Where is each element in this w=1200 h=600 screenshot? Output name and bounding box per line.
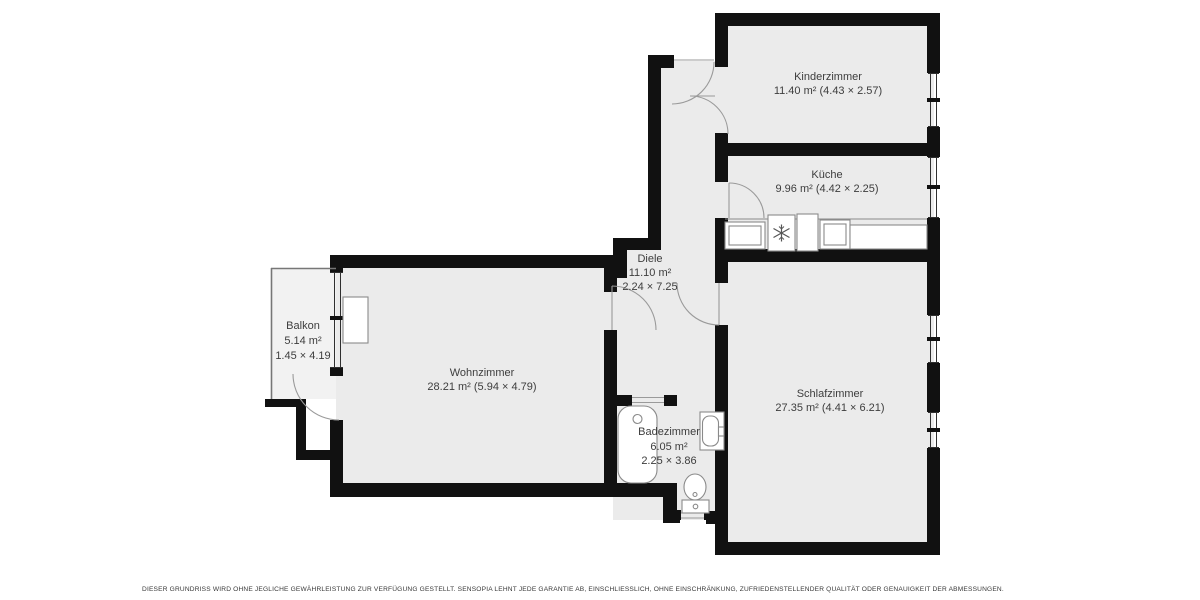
room-floors bbox=[271, 20, 934, 549]
washbasin-faucet bbox=[719, 427, 725, 436]
countertop bbox=[850, 225, 927, 249]
wall-hallway-left bbox=[648, 68, 661, 250]
window-tick bbox=[927, 98, 940, 102]
room-name: Kinderzimmer bbox=[794, 71, 862, 83]
floor-plan-canvas: Kinderzimmer 11.40 m² (4.43 × 2.57) Küch… bbox=[0, 0, 1200, 600]
room-size: 28.21 m² (5.94 × 4.79) bbox=[427, 381, 536, 393]
wall-right-seg3 bbox=[927, 218, 940, 315]
door-jamb bbox=[676, 510, 681, 520]
wall-kinder-kueche-divider bbox=[715, 143, 940, 156]
room-name: Badezimmer bbox=[638, 426, 700, 438]
wall-wohnzimmer-right bbox=[604, 330, 617, 483]
wall-kinderzimmer-left-upper bbox=[715, 26, 728, 67]
room-size: 11.40 m² (4.43 × 2.57) bbox=[774, 85, 882, 97]
radiator bbox=[343, 297, 368, 343]
floor-right-wing bbox=[721, 20, 934, 549]
room-area: 5.14 m² bbox=[284, 335, 322, 347]
washbasin-bowl bbox=[703, 416, 719, 446]
room-dims: 2.24 × 7.25 bbox=[622, 281, 677, 293]
kitchen-sink-basin bbox=[729, 226, 761, 245]
window-tick bbox=[330, 316, 343, 320]
floor-plan-svg: Kinderzimmer 11.40 m² (4.43 × 2.57) Küch… bbox=[0, 0, 1200, 600]
room-name: Küche bbox=[811, 169, 842, 181]
wall-wohnzimmer-top bbox=[330, 255, 620, 268]
room-size: 9.96 m² (4.42 × 2.25) bbox=[775, 183, 878, 195]
kitchen-cabinet bbox=[797, 214, 818, 251]
room-name: Balkon bbox=[286, 320, 320, 332]
wall-wohnzimmer-bottom bbox=[330, 483, 663, 497]
window-tick bbox=[927, 337, 940, 341]
wall-hallway-top-cap bbox=[648, 55, 674, 68]
stove-top bbox=[824, 224, 846, 245]
wall-kinderzimmer-top bbox=[715, 13, 940, 26]
room-area: 6.05 m² bbox=[650, 441, 688, 453]
wall-schlafzimmer-bottom bbox=[715, 542, 940, 555]
window-tick bbox=[927, 428, 940, 432]
floor-balcony bbox=[271, 268, 336, 399]
wall-right-seg1 bbox=[927, 13, 940, 73]
room-name: Wohnzimmer bbox=[450, 367, 515, 379]
wall-wohnzimmer-left-mid bbox=[330, 368, 343, 376]
wall-wohnzimmer-left-top bbox=[330, 255, 343, 272]
wall-right-seg2 bbox=[927, 127, 940, 157]
room-size: 27.35 m² (4.41 × 6.21) bbox=[775, 402, 884, 414]
kitchen-fixtures bbox=[725, 214, 927, 251]
wall-schlafzimmer-left-upper bbox=[715, 262, 728, 283]
wall-bad-top-left bbox=[604, 395, 632, 406]
window-tick bbox=[927, 185, 940, 189]
wall-bad-top-right bbox=[664, 395, 677, 406]
room-dims: 2.25 × 3.86 bbox=[641, 455, 696, 467]
room-name: Diele bbox=[637, 253, 662, 265]
wall-kueche-left-upper bbox=[715, 156, 728, 182]
wall-balcony-step-bottom bbox=[296, 450, 343, 460]
wall-balcony-step-vert bbox=[296, 399, 306, 458]
wall-hallway-step-c bbox=[604, 268, 617, 292]
wall-right-seg5 bbox=[927, 448, 940, 555]
room-dims: 1.45 × 4.19 bbox=[275, 350, 330, 362]
wall-right-seg4 bbox=[927, 363, 940, 412]
disclaimer-text: DIESER GRUNDRISS WIRD OHNE JEGLICHE GEWÄ… bbox=[142, 585, 1004, 593]
room-name: Schlafzimmer bbox=[797, 388, 864, 400]
toilet-cistern bbox=[682, 500, 709, 513]
room-area: 11.10 m² bbox=[629, 267, 672, 279]
wall-kinderzimmer-left-lower bbox=[715, 133, 728, 143]
wall-kueche-schlaf-divider bbox=[715, 249, 940, 262]
